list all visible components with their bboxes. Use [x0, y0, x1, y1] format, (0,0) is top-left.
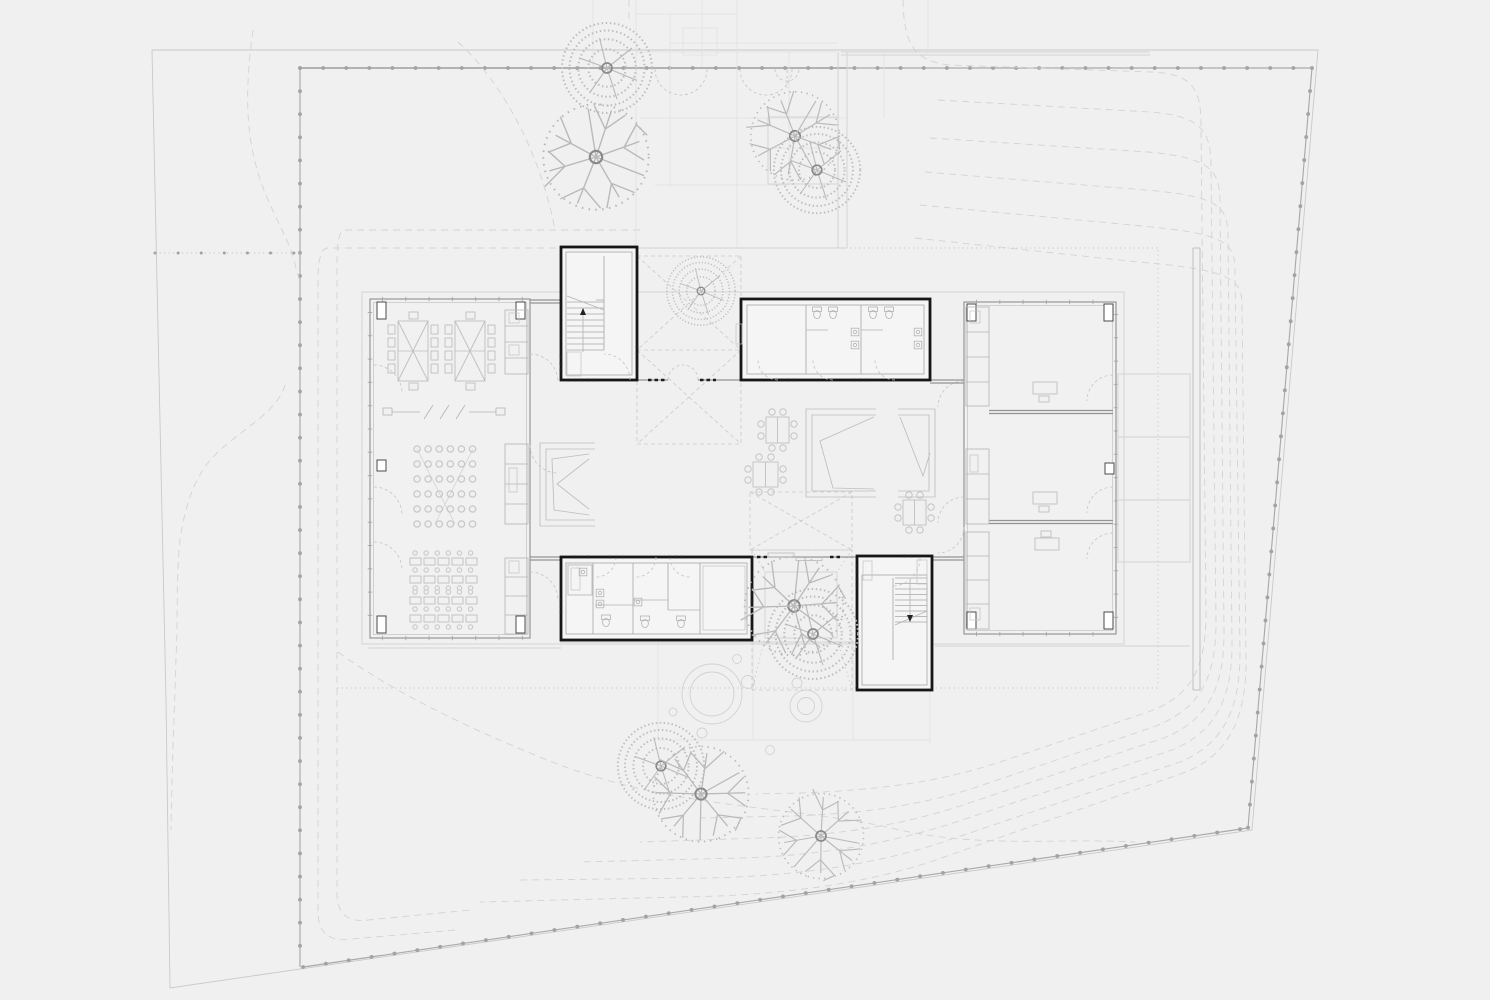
sanitary-block-north	[736, 299, 930, 380]
terrace	[1118, 374, 1190, 562]
left-wing	[370, 299, 558, 638]
trees	[543, 23, 875, 890]
property-line	[152, 50, 1318, 988]
leafy-tree	[667, 257, 735, 325]
entrance-double-door	[648, 365, 716, 380]
skylight-marker	[750, 492, 852, 550]
column	[1104, 612, 1113, 629]
right-wing	[938, 302, 1116, 634]
column	[516, 302, 525, 319]
seating-nook	[898, 409, 935, 497]
column	[377, 302, 386, 319]
leafy-tree	[618, 723, 704, 809]
wall-post	[1105, 463, 1114, 474]
vestibule-wall	[530, 300, 561, 303]
seating-nook	[540, 443, 595, 526]
canopy-scallop-arcs	[655, 69, 799, 95]
leafy-tree	[768, 589, 858, 679]
retaining-wall	[1193, 248, 1200, 690]
stair-core-south	[857, 556, 932, 690]
branched-tree	[640, 733, 762, 855]
branched-tree	[767, 782, 876, 891]
upper-terrace-edge	[841, 52, 1150, 55]
courtyard-north	[637, 256, 741, 444]
column	[967, 612, 976, 629]
dining-table	[895, 492, 934, 533]
stair-core-north	[561, 247, 637, 380]
branched-tree	[543, 104, 648, 209]
dining-table	[758, 409, 797, 451]
site-boundary	[152, 50, 1318, 988]
seating-nook	[806, 409, 876, 497]
column	[516, 616, 525, 633]
wall-post	[377, 460, 386, 471]
column	[377, 616, 386, 633]
sanitary-block-south	[561, 557, 752, 640]
branched-tree	[733, 74, 858, 199]
column	[1104, 304, 1113, 321]
column	[967, 304, 976, 321]
site-plan-drawing	[0, 0, 1490, 1000]
floor-plan-canvas	[0, 0, 1490, 1000]
landscape-circles	[669, 655, 822, 755]
dining-table	[745, 454, 786, 495]
